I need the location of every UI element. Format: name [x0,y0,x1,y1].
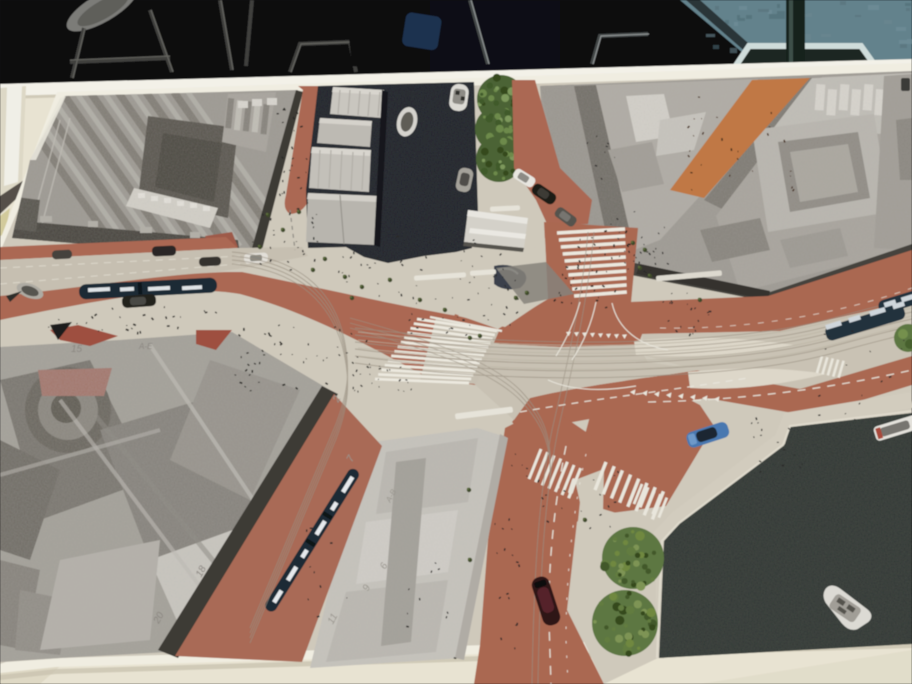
svg-text:A-E: A-E [138,342,153,351]
svg-text:15: 15 [71,344,83,355]
